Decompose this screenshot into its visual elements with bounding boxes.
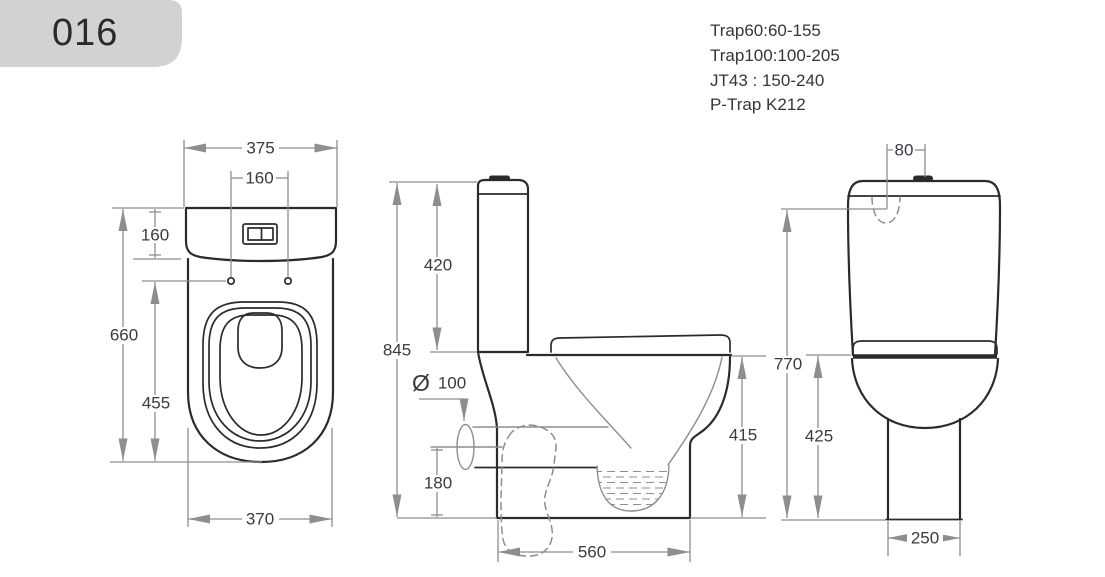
dim-label-tank-height: 420: [424, 255, 452, 274]
flush-button-front: [913, 176, 933, 182]
dim-outlet-height-180: 180: [420, 448, 456, 517]
seat-hinge-hole: [228, 278, 234, 284]
pan-front-side: [690, 357, 730, 518]
dim-depth-560: 560: [498, 520, 690, 562]
front-view-dimensions: 80 770 425 250: [769, 140, 960, 556]
trap-note-line: Trap60:60-155: [710, 21, 821, 40]
dim-label-inlet-offset: 80: [895, 140, 914, 159]
dim-label-height: 845: [383, 340, 411, 359]
dim-tank-depth-160: 160: [139, 209, 171, 258]
flush-button-inner: [248, 228, 273, 240]
dim-label-hole-to-front: 455: [142, 393, 170, 412]
bowl-wall-left: [556, 358, 631, 448]
model-number: 016: [52, 12, 118, 54]
inlet-hole-hidden: [872, 197, 900, 223]
dim-label-outlet-size: 100: [438, 373, 466, 392]
cistern-front: [848, 181, 1000, 355]
dim-depth-660: 660: [106, 209, 142, 461]
top-view-part: [186, 208, 336, 462]
dim-inlet-offset-80: 80: [887, 140, 925, 159]
model-badge: 016: [0, 0, 182, 67]
dim-label-foot-width: 250: [911, 528, 939, 547]
technical-drawing: 016 Trap60:60-155 Trap100:100-205 JT43 :…: [0, 0, 1105, 577]
dim-label-base-width: 370: [246, 509, 274, 528]
dim-label-tank-depth: 160: [141, 225, 169, 244]
dim-outlet-diameter-100: Ø 100: [412, 370, 466, 421]
trap-note-line: JT43 : 150-240: [710, 71, 824, 90]
seat-hinge-hole: [285, 278, 291, 284]
side-view: 845 420 Ø 100 180: [379, 176, 766, 563]
pan-back-side: [478, 352, 497, 518]
dim-label-bowl-height: 425: [805, 426, 833, 445]
dim-base-width-370: 370: [188, 428, 332, 528]
dim-rim-height-415: 415: [725, 357, 761, 517]
trap-note-line: P-Trap K212: [710, 95, 806, 114]
dim-tank-height-420: 420: [420, 184, 456, 350]
dim-foot-width-250: 250: [888, 521, 960, 556]
side-view-part: [431, 176, 731, 557]
seat-lid-front: [853, 341, 997, 354]
flush-button-side: [489, 176, 510, 181]
bowl-front: [852, 359, 998, 428]
s-trap-hidden-outline: [501, 425, 556, 556]
water-hatching: [590, 472, 672, 505]
top-view: 375 160 160: [106, 138, 337, 528]
water-spot-plan: [238, 313, 282, 368]
front-view: 80 770 425 250: [769, 140, 1000, 556]
bowl-wall-right: [668, 357, 722, 465]
bowl-rim-plan: [220, 315, 302, 435]
side-view-dimensions: 845 420 Ø 100 180: [379, 182, 766, 562]
seat-side: [551, 335, 730, 352]
dim-bowl-height-425: 425: [800, 356, 837, 518]
dim-label-outlet-symbol: Ø: [412, 370, 430, 396]
cistern-side: [478, 180, 528, 194]
dim-height-845: 845: [379, 183, 415, 517]
spec-sheet: 016 Trap60:60-155 Trap100:100-205 JT43 :…: [0, 0, 1105, 577]
front-view-part: [848, 176, 1000, 520]
dim-label-rim-height: 415: [729, 425, 757, 444]
dim-label-hole-spacing: 160: [245, 168, 273, 187]
trap-note-line: Trap100:100-205: [710, 46, 840, 65]
dim-label-outlet-height: 180: [424, 473, 452, 492]
dim-hole-to-front-455: 455: [138, 282, 174, 461]
dim-inlet-height-770: 770: [769, 210, 806, 518]
dim-label-depth: 560: [578, 542, 606, 561]
dim-label-depth: 660: [110, 325, 138, 344]
dim-label-width: 375: [246, 138, 274, 157]
dim-label-inlet-height: 770: [774, 354, 802, 373]
trap-notes: Trap60:60-155 Trap100:100-205 JT43 : 150…: [710, 21, 840, 114]
